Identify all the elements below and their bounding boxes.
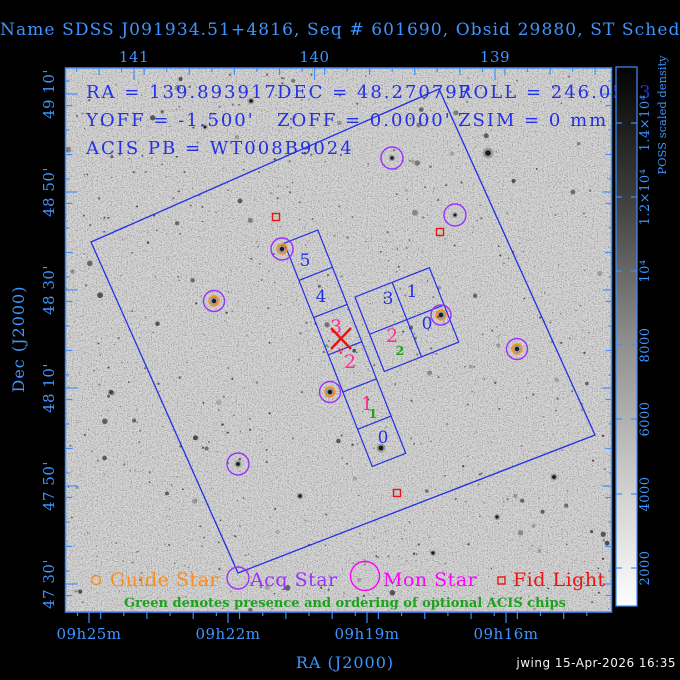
zoff-value: ZOFF = 0.0000' — [277, 110, 452, 131]
optional-chip-order-1: 1 — [369, 406, 378, 421]
colorbar-tick-label: 10⁴ — [638, 259, 653, 282]
credit-timestamp: jwing 15-Apr-2026 16:35 — [516, 656, 676, 670]
optional-chips-note: Green denotes presence and ordering of o… — [124, 596, 566, 611]
optional-chip-order-2: 2 — [396, 343, 405, 358]
colorbar-tick-label: 1.4×10⁴ — [638, 95, 653, 152]
zsim-value: ZSIM = 0 mm — [458, 110, 608, 131]
colorbar: 1.4×10⁴ 1.2×10⁴ 10⁴ 8000 6000 4000 2000 … — [616, 55, 669, 606]
colorbar-gradient — [616, 67, 637, 606]
colorbar-title: POSS scaled density — [655, 55, 669, 175]
ra-value: RA = 139.893917 — [86, 82, 278, 103]
colorbar-tick-label: 4000 — [638, 476, 653, 511]
yoff-value: YOFF = -1.500' — [85, 110, 255, 131]
x-top-tick-label: 141 — [119, 48, 149, 66]
x-bottom-tick-label: 09h19m — [334, 625, 399, 643]
aimpoint-v-mark: v — [337, 346, 344, 357]
y-left-tick-label: 48 10' — [40, 363, 58, 413]
acis-pb-value: ACIS PB = WT008B9024 — [85, 138, 354, 159]
x-bottom-tick-label: 09h22m — [195, 625, 260, 643]
chip-s4-label: 4 — [316, 287, 327, 307]
colorbar-tick-label: 6000 — [638, 401, 653, 436]
x-top-tick-label: 140 — [299, 48, 329, 66]
y-left-tick-label: 47 30' — [40, 559, 58, 609]
y-left-tick-label: 49 10' — [40, 69, 58, 119]
legend-mon-star-label: Mon Star — [383, 569, 478, 591]
x-top-tick-label: 139 — [480, 48, 510, 66]
chip-i3-label: 3 — [383, 289, 394, 309]
colorbar-tick-label: 8000 — [638, 327, 653, 362]
legend-fid-light-label: Fid Light — [513, 569, 606, 591]
y-left-tick-label: 48 50' — [40, 167, 58, 217]
x-bottom-tick-label: 09h25m — [56, 625, 121, 643]
colorbar-tick-label: 2000 — [638, 550, 653, 585]
x-bottom-tick-label: 09h16m — [473, 625, 538, 643]
chip-s0-label: 0 — [378, 428, 389, 448]
y-axis-title: Dec (J2000) — [9, 286, 28, 393]
y-left-tick-label: 48 30' — [40, 265, 58, 315]
y-left-tick-label: 47 50' — [40, 461, 58, 511]
chip-i1-label: 1 — [407, 282, 418, 302]
x-axis-title: RA (J2000) — [296, 653, 394, 672]
chip-s2-label: 2 — [344, 351, 356, 373]
colorbar-tick-label: 1.2×10⁴ — [638, 169, 653, 226]
legend-acq-star-label: Acq Star — [249, 569, 338, 591]
obsvis-plot: 5 4 3 2 1 0 3 1 2 0 1 2 v — [0, 0, 680, 680]
dec-value: DEC = 48.270797 — [277, 82, 472, 103]
legend-guide-star-label: Guide Star — [110, 569, 219, 591]
chip-s5-label: 5 — [300, 251, 311, 271]
colorbar-labels: 1.4×10⁴ 1.2×10⁴ 10⁴ 8000 6000 4000 2000 … — [638, 55, 669, 586]
